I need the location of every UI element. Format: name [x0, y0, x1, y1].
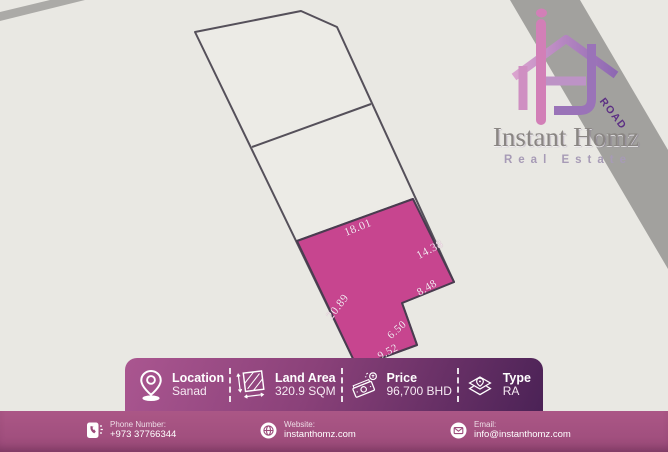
- info-value: Sanad: [172, 385, 224, 398]
- contact-value: instanthomz.com: [284, 429, 356, 440]
- info-bar: Location Sanad Land Area 320.9 SQM: [125, 358, 543, 411]
- email-icon: [450, 422, 467, 439]
- info-bar-separator: [229, 368, 231, 402]
- info-label: Land Area: [275, 371, 336, 385]
- road-stripe-corner: [0, 0, 85, 21]
- listing-graphic: 18.01 14.38 8.48 20.89 6.50 9.52 ROAD In…: [0, 0, 668, 452]
- info-value: 96,700 BHD: [386, 385, 451, 398]
- info-item-price: Price 96,700 BHD: [347, 369, 451, 401]
- contact-item-phone: Phone Number: +973 37766344: [86, 420, 176, 440]
- info-item-land-area: Land Area 320.9 SQM: [236, 369, 336, 401]
- area-icon: [236, 369, 268, 401]
- contact-label: Phone Number:: [110, 420, 176, 429]
- info-item-location: Location Sanad: [137, 367, 224, 403]
- contact-item-website: Website: instanthomz.com: [260, 420, 356, 440]
- contact-value: +973 37766344: [110, 429, 176, 440]
- info-item-type: Type RA: [464, 369, 531, 401]
- info-value: RA: [503, 385, 531, 398]
- info-bar-separator: [341, 368, 343, 402]
- info-label: Price: [386, 371, 451, 385]
- info-value: 320.9 SQM: [275, 385, 336, 398]
- info-label: Location: [172, 371, 224, 385]
- money-icon: [347, 369, 379, 401]
- brand-tagline: Real Estate: [480, 154, 656, 166]
- globe-icon: [260, 422, 277, 439]
- logo-i-dot: [536, 9, 547, 18]
- contact-value: info@instanthomz.com: [474, 429, 571, 440]
- phone-icon: [86, 421, 103, 440]
- info-label: Type: [503, 371, 531, 385]
- map-type-icon: [464, 369, 496, 401]
- contact-label: Website:: [284, 420, 356, 429]
- contact-item-email: Email: info@instanthomz.com: [450, 420, 571, 440]
- contact-bar: Phone Number: +973 37766344 Website: ins…: [0, 411, 668, 452]
- brand-name: Instant Homz: [480, 122, 652, 153]
- contact-label: Email:: [474, 420, 571, 429]
- info-bar-separator: [457, 368, 459, 402]
- location-pin-icon: [137, 367, 165, 403]
